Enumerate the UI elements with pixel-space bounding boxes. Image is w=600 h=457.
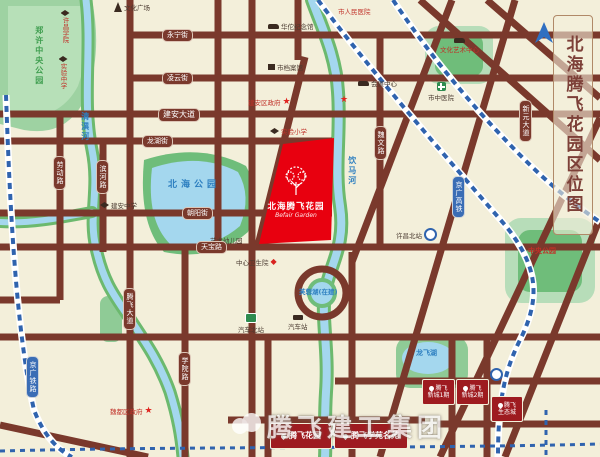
school-icon [270, 128, 279, 134]
road-label-weiwen: 魏文路 [374, 126, 387, 160]
poi-label: 许昌学院 [60, 17, 70, 43]
project-name-en: Befair Garden [275, 212, 317, 219]
map-title-box: 北海腾飞花园区位图 [553, 15, 593, 235]
road-label-tengfei-avenue: 腾飞大道 [123, 288, 136, 330]
project-marker-sublabel: 新城2期 [462, 392, 484, 400]
park-label-beihai: 北海公园 [168, 181, 220, 191]
road-label-laodong: 劳动路 [53, 156, 66, 190]
road-label-tianbao: 天宝路 [196, 241, 227, 254]
poi-health-center: 中心卫生院 ◆ [236, 257, 277, 267]
park-label-central: 中央公园 [528, 248, 556, 256]
poi-bus-station: 汽车站 [288, 315, 308, 331]
poi-hsr-station-marker [490, 368, 503, 381]
road-label-xueyuan: 学院路 [178, 352, 191, 386]
location-map: 北海腾飞花园 Befair Garden 郑许中央公园 北海公园 中央公园 清潩… [0, 0, 600, 457]
poi-label: 市档案馆 [277, 62, 303, 72]
north-arrow-icon [534, 22, 554, 44]
poi-culture-center: 文化艺术中心 [440, 38, 479, 54]
road-label-longhu: 龙湖街 [142, 135, 173, 148]
poi-label: 华佗纪念馆 [281, 21, 314, 31]
poi-label: 市中医院 [428, 92, 454, 102]
poi-shiyan-primary: 实验小学 [270, 126, 307, 136]
star-icon: ★ [145, 407, 153, 416]
map-title: 北海腾飞花园区位图 [561, 35, 586, 215]
poi-label: 建安区政府 [248, 97, 281, 107]
project-site: 北海腾飞花园 Befair Garden [256, 140, 336, 242]
project-marker-label: 腾飞 [435, 385, 447, 393]
train-station-icon [424, 228, 437, 241]
building-icon [268, 64, 275, 70]
building-icon [268, 24, 279, 29]
project-marker-sublabel: 生态城 [498, 409, 516, 417]
river-label-yinma: 饮马河 [347, 156, 356, 186]
poi-label: 实验中学 [58, 63, 68, 89]
road-label-lingyun: 凌云街 [162, 72, 193, 85]
school-icon [61, 10, 70, 16]
road-label-binhe: 滨河路 [96, 160, 109, 194]
project-marker-label: 腾飞 [504, 402, 516, 410]
road-label-jianan-avenue: 建安大道 [158, 108, 200, 122]
poi-label: 汽车站 [288, 321, 308, 331]
poi-tcm-hospital: 市中医院 [428, 82, 454, 102]
star-icon: ★ [340, 96, 348, 105]
road-label-xinyuan-avenue: 新元大道 [519, 100, 532, 142]
poi-label: 魏都区政府 [110, 406, 143, 416]
railway-label-hsr: 京广高铁 [452, 176, 465, 218]
train-station-icon [490, 368, 503, 381]
poi-label: 汽车北站 [238, 324, 264, 334]
poi-archives: 市档案馆 [268, 62, 303, 72]
poi-exhibition-center: 会展中心 [358, 78, 397, 88]
road-label-chaoyang: 朝阳街 [182, 207, 213, 220]
building-icon [454, 38, 465, 43]
hospital-cross-icon [437, 82, 446, 91]
poi-xuchang-college: 许昌学院 [60, 10, 70, 43]
poi-jianan-gov: 建安区政府 ★ [248, 97, 291, 107]
project-marker-label: 腾飞 [469, 385, 481, 393]
poi-jianan-middle: 建安中学 [100, 200, 137, 210]
group-logo-icon [232, 412, 262, 440]
tree-logo-icon [277, 164, 315, 198]
lake-label-furong: 芙蓉湖(在建) [299, 289, 337, 296]
lake-label-longfei: 龙飞湖 [416, 350, 437, 358]
tower-icon [114, 2, 122, 12]
poi-star-2: ★ [340, 96, 348, 105]
star-icon: ★ [283, 98, 291, 107]
poi-label: 建安中学 [111, 200, 137, 210]
road-label-yongning: 永宁街 [162, 29, 193, 42]
watermark: 腾飞建工集团 [232, 408, 447, 444]
map-pin-icon [462, 385, 469, 392]
poi-label: 会展中心 [371, 78, 397, 88]
poi-renmin-hospital: 市人民医院 [338, 6, 371, 16]
poi-label: 市人民医院 [338, 6, 371, 16]
poi-bus-north: 汽车北站 [238, 313, 264, 334]
poi-wenhua-square: 文化广场 [114, 2, 150, 12]
project-marker-2: 腾飞 新城2期 [456, 379, 489, 405]
bus-icon [293, 315, 303, 320]
poi-label: 中心卫生院 [236, 257, 269, 267]
project-marker-3: 腾飞 生态城 [491, 396, 523, 422]
bus-station-icon [245, 313, 257, 323]
project-marker-sublabel: 新城1期 [428, 392, 450, 400]
school-icon [59, 56, 68, 62]
school-icon [100, 202, 109, 208]
map-pin-icon [497, 402, 504, 409]
poi-label: 许昌北站 [396, 230, 422, 240]
poi-label: 实验小学 [281, 126, 307, 136]
poi-huatuo-memorial: 华佗纪念馆 [268, 21, 314, 31]
watermark-text: 腾飞建工集团 [267, 408, 447, 444]
map-pin-icon [428, 385, 435, 392]
poi-shiyan-middle: 实验中学 [58, 56, 68, 89]
poi-label: 文化艺术中心 [440, 44, 479, 54]
park-label-zhengxu-central: 郑许中央公园 [34, 26, 43, 86]
railway-label-jingguang: 京广铁路 [26, 356, 39, 398]
poi-weidu-gov: 魏都区政府 ★ [110, 406, 153, 416]
project-name: 北海腾飞花园 [267, 200, 324, 212]
cross-diamond-icon: ◆ [271, 258, 277, 266]
poi-label: 文化广场 [124, 2, 150, 12]
project-marker-1: 腾飞 新城1期 [422, 379, 455, 405]
river-label-qingyi: 清潩河 [80, 112, 89, 142]
car-icon [358, 81, 369, 86]
poi-north-rail-station: 许昌北站 [396, 228, 437, 241]
